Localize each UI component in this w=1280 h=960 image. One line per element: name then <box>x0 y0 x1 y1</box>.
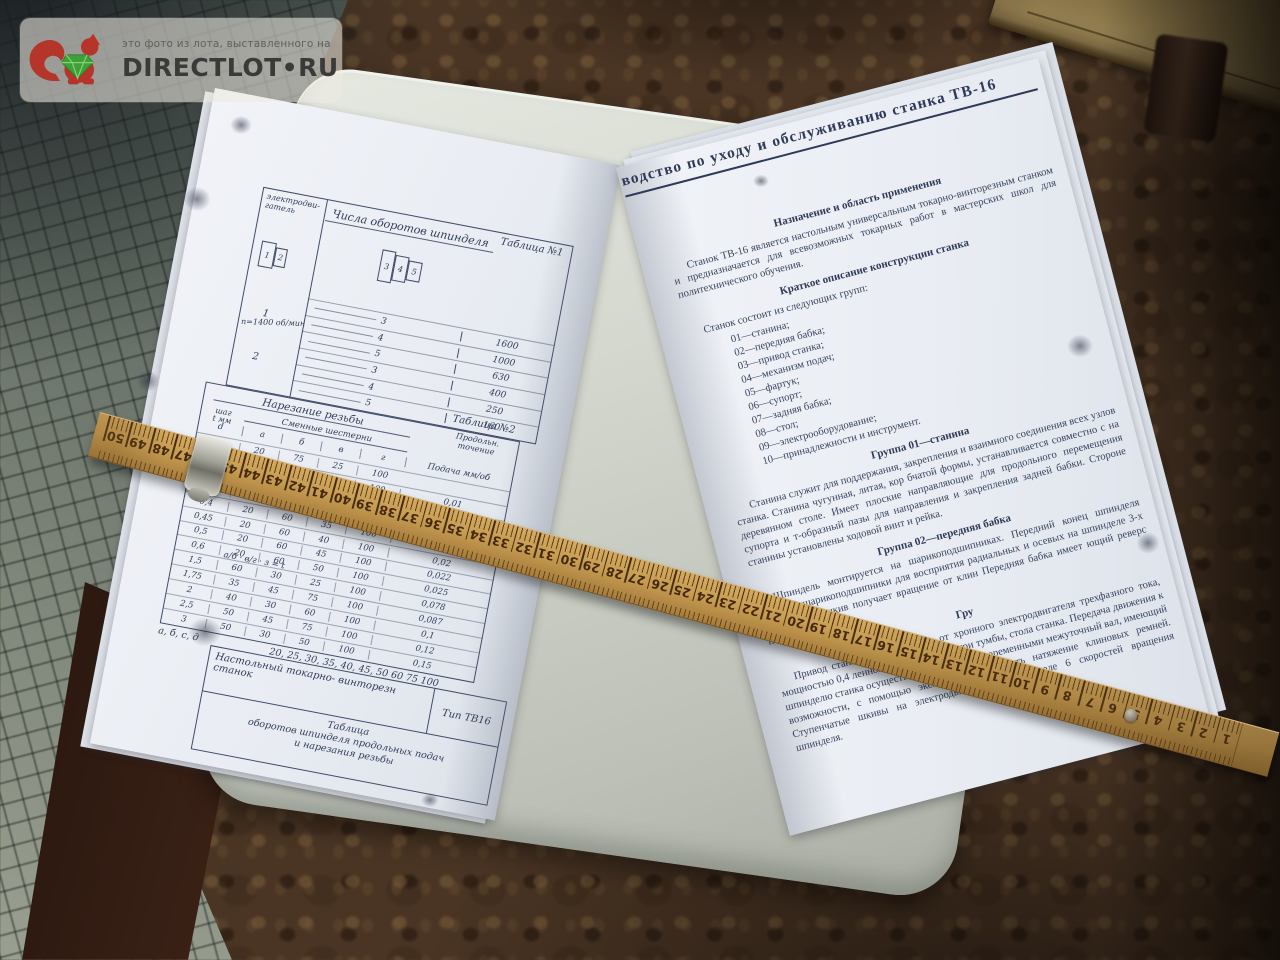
ink-smudge <box>178 182 216 216</box>
ink-smudge <box>1062 330 1098 362</box>
photo-scene: Таблица №1 Числа оборотов шпинделя элект… <box>0 0 1280 960</box>
ink-smudge <box>182 612 228 652</box>
table2-row: 1,56030 251000,078 <box>172 549 487 623</box>
table1-caption: Таблица №1 <box>500 236 564 259</box>
step-column-header: шаг t мм <box>201 405 243 429</box>
table1-row: 4250 <box>293 364 542 427</box>
gear-formula: а/б · в/г · з = t <box>223 550 286 571</box>
ruler-number: 1 <box>1213 729 1240 750</box>
table1-row: 31600 <box>305 298 554 361</box>
motor-rpm-note: n=1400 об/мин <box>241 317 305 328</box>
ink-smudge <box>132 366 164 396</box>
ink-smudge <box>1132 528 1164 558</box>
ink-smudge <box>418 790 442 810</box>
motor-row-label-2: 2 <box>251 351 259 363</box>
gears-column-header: Сменные шестерни <box>244 411 409 453</box>
machine-name: Настольный токарно- винторезн станок <box>203 646 434 733</box>
ink-smudge <box>750 172 772 190</box>
squirrel-logo <box>26 28 122 92</box>
watermark-brand: DIRECTLOT•RU <box>122 53 339 82</box>
machine-type: Тип ТВ16 <box>426 689 506 747</box>
ink-smudge <box>226 112 256 138</box>
table1-frame: Таблица №1 Числа оборотов шпинделя элект… <box>225 187 573 445</box>
table1-row: 5160 <box>290 380 539 443</box>
spindle-pulley-sketch: 345 <box>377 249 424 288</box>
table1-rows: 31600 41000 5630 3400 4250 5160 <box>290 298 554 443</box>
motor-row-label-1: 1 <box>262 308 270 320</box>
motor-pulley-sketch: 12 <box>257 241 288 272</box>
motor-label: электродви- гатель <box>264 193 321 220</box>
table1-row: 5630 <box>299 331 548 394</box>
table2-title: Нарезание резьбы <box>213 387 412 437</box>
table2-caption: Таблица №2 <box>452 414 516 437</box>
table1-row: 41000 <box>302 315 551 378</box>
watermark-banner: это фото из лота, выставленного на DIREC… <box>20 18 342 102</box>
table1-title: Числа оборотов шпинделя <box>325 206 496 253</box>
table1-row: 3400 <box>296 347 545 410</box>
feed-column-header: Продольн. точение <box>439 430 515 461</box>
table1-motor-column: электродви- гатель 12 n=1400 об/мин <box>227 188 328 397</box>
watermark-note: это фото из лота, выставленного на <box>122 38 339 50</box>
